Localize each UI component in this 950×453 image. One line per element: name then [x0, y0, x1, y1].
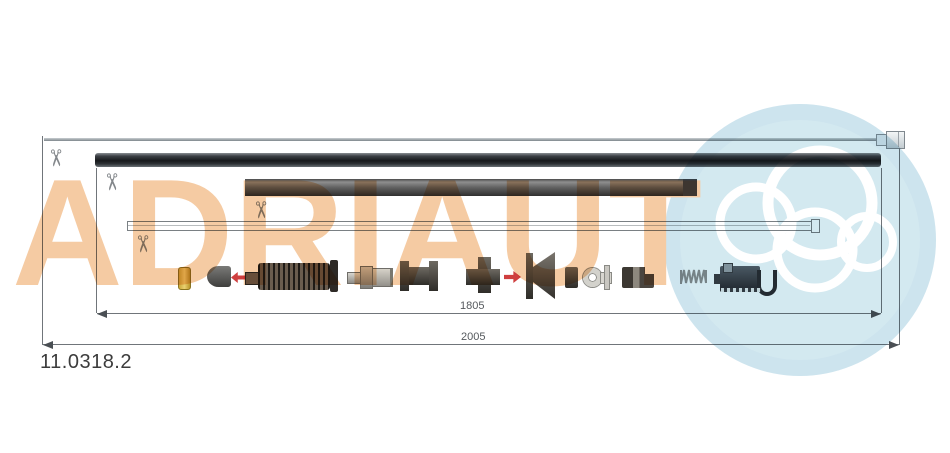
dimension-label-outer: 2005	[461, 331, 485, 343]
bracket-dashed-edge	[721, 288, 761, 292]
dimension-arrow-icon	[43, 341, 53, 349]
dimension-arrow-icon	[97, 310, 107, 318]
bellows-flange	[330, 260, 338, 292]
inner-rod-end-cap	[811, 219, 820, 233]
bellows-boot	[258, 263, 330, 290]
cable-nipple	[886, 131, 905, 149]
end-cone	[207, 266, 231, 287]
pin-fitting-tip	[347, 272, 361, 284]
dimension-arrow-icon	[889, 341, 899, 349]
dimension-extension-right-outer	[899, 148, 900, 345]
bracket-hook	[757, 270, 777, 296]
bracket-tab	[723, 263, 733, 273]
outer-sheath-cable	[95, 153, 881, 167]
cross-fitting-horizontal	[466, 269, 500, 285]
pin-fitting-body	[372, 268, 393, 287]
dimension-extension-right-inner	[881, 168, 882, 313]
brass-ferrule	[178, 267, 191, 290]
red-arrow-left-icon	[231, 272, 246, 283]
eyelet-tab	[604, 265, 610, 290]
dimension-arrow-icon	[871, 310, 881, 318]
part-number: 11.0318.2	[40, 351, 132, 374]
red-arrow-right-icon	[504, 271, 521, 283]
dimension-extension-left-inner	[96, 168, 97, 313]
conduit-sleeve-end	[683, 179, 697, 196]
coil-spring	[679, 266, 709, 287]
funnel-flange	[526, 253, 533, 299]
scissors-icon: ✂	[96, 166, 127, 197]
spool-flange-left	[400, 261, 409, 291]
dimension-line-outer	[43, 344, 899, 345]
dimension-extension-left-outer	[42, 136, 43, 345]
dimension-line-inner	[97, 313, 881, 314]
scissors-icon: ✂	[127, 228, 158, 259]
scissors-icon: ✂	[245, 194, 276, 225]
spool-barrel	[409, 267, 429, 285]
dimension-label-inner: 1805	[460, 300, 484, 312]
inner-rod-midline	[128, 225, 810, 226]
nipple-cap-line	[898, 132, 899, 147]
cylinder-notch	[645, 266, 654, 274]
inner-rod	[127, 221, 813, 231]
cable-diagram: ✂ ✂ ✂ ✂	[0, 0, 950, 453]
inner-wire-cable	[44, 138, 876, 141]
funnel-fitting	[533, 252, 555, 299]
spacer-block	[565, 267, 578, 288]
conduit-sleeve	[245, 179, 697, 196]
scissors-icon: ✂	[40, 142, 71, 173]
catalog-image: ADRIAUT ✂ ✂ ✂ ✂	[0, 0, 950, 453]
spool-flange-right	[429, 261, 438, 291]
